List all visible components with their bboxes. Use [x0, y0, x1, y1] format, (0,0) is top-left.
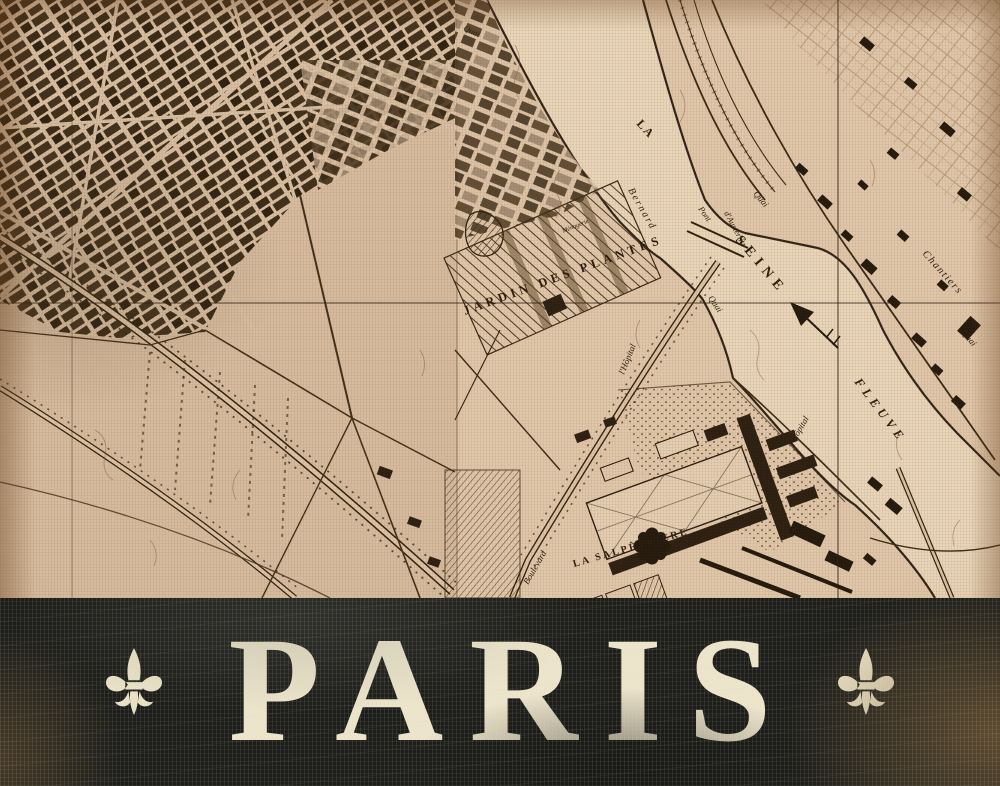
map-area: JARDIN DES PLANTES Ménagerie LA SEINE FL… [0, 0, 1000, 598]
banner-content: PARIS [103, 617, 898, 767]
poster-title: PARIS [229, 615, 798, 765]
map-drawing: JARDIN DES PLANTES Ménagerie LA SEINE FL… [0, 0, 1000, 598]
title-banner: PARIS [0, 598, 1000, 786]
fleur-de-lis-icon [835, 645, 897, 739]
paris-map-poster: JARDIN DES PLANTES Ménagerie LA SEINE FL… [0, 0, 1000, 786]
fleur-de-lis-icon [103, 645, 165, 739]
